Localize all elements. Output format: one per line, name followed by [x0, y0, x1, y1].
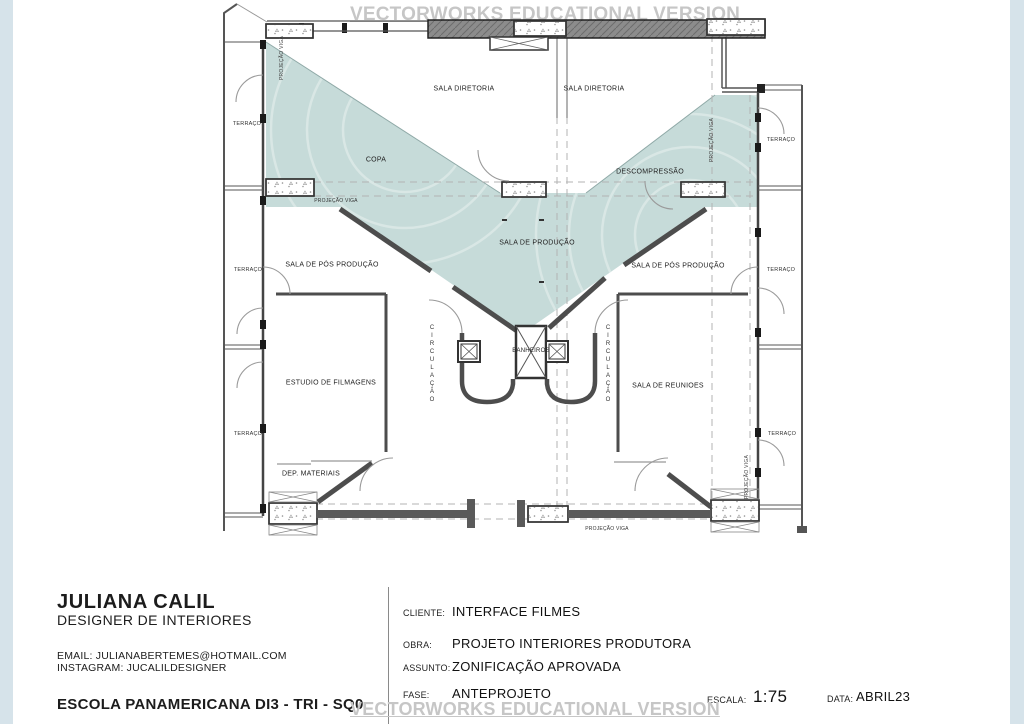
room-label-reunioes: SALA DE REUNIOES	[632, 383, 704, 390]
terrace-label: TERRAÇO	[233, 121, 261, 127]
floor-plan-drawing	[0, 0, 1024, 570]
obra-label: OBRA:	[403, 640, 432, 650]
room-label-circulacao-1: CIRCULAÇÃO	[429, 325, 435, 405]
beam-label: PROJEÇÃO VIGA	[709, 118, 715, 162]
designer-email: EMAIL: JULIANABERTEMES@HOTMAIL.COM	[57, 650, 287, 662]
room-label-estudio: ESTUDIO DE FILMAGENS	[286, 380, 376, 387]
room-label-banheiros: BANHEIROS	[512, 348, 550, 354]
cliente-value: INTERFACE FILMES	[452, 604, 580, 619]
room-label-sala-diretoria-1: SALA DIRETORIA	[434, 86, 495, 93]
beam-label: PROJEÇÃO VIGA	[314, 198, 357, 204]
room-label-sala-producao: SALA DE PRODUÇÃO	[499, 240, 575, 247]
bottom-beam	[316, 499, 711, 528]
school-project-code: ESCOLA PANAMERICANA DI3 - TRI - SQ0	[57, 696, 364, 713]
escala-value: 1:75	[753, 687, 787, 707]
data-value: ABRIL23	[856, 689, 910, 704]
terrace-label: TERRAÇO	[234, 431, 262, 437]
designer-title: DESIGNER DE INTERIORES	[57, 612, 252, 628]
vectorworks-watermark-bottom: VECTORWORKS EDUCATIONAL VERSION	[350, 699, 720, 720]
terrace-label: TERRAÇO	[767, 267, 795, 273]
designer-name: JULIANA CALIL	[57, 591, 215, 614]
designer-instagram: INSTAGRAM: JUCALILDESIGNER	[57, 662, 227, 674]
room-label-dep-materiais: DEP. MATERIAIS	[282, 471, 340, 478]
terrace-label: TERRAÇO	[767, 137, 795, 143]
terrace-label: TERRAÇO	[234, 267, 262, 273]
terrace-label: TERRAÇO	[768, 431, 796, 437]
room-label-descompressao: DESCOMPRESSÃO	[616, 169, 684, 176]
room-label-sala-diretoria-2: SALA DIRETORIA	[564, 86, 625, 93]
room-label-pos-producao-2: SALA DE PÓS PRODUÇÃO	[631, 263, 724, 270]
room-label-circulacao-2: CIRCULAÇÃO	[605, 325, 611, 405]
core-banheiros	[458, 326, 595, 402]
beam-label: PROJEÇÃO VIGA	[744, 455, 750, 499]
obra-value: PROJETO INTERIORES PRODUTORA	[452, 636, 691, 651]
assunto-value: ZONIFICAÇÃO APROVADA	[452, 659, 621, 674]
assunto-label: ASSUNTO:	[403, 663, 450, 673]
beam-label: PROJEÇÃO VIGA	[279, 36, 285, 80]
cliente-label: CLIENTE:	[403, 608, 445, 618]
room-label-copa: COPA	[366, 157, 386, 164]
room-label-pos-producao-1: SALA DE PÓS PRODUÇÃO	[285, 262, 378, 269]
beam-label: PROJEÇÃO VIGA	[585, 526, 628, 532]
data-label: DATA:	[827, 694, 853, 704]
drawing-sheet: VECTORWORKS EDUCATIONAL VERSION	[0, 0, 1024, 724]
